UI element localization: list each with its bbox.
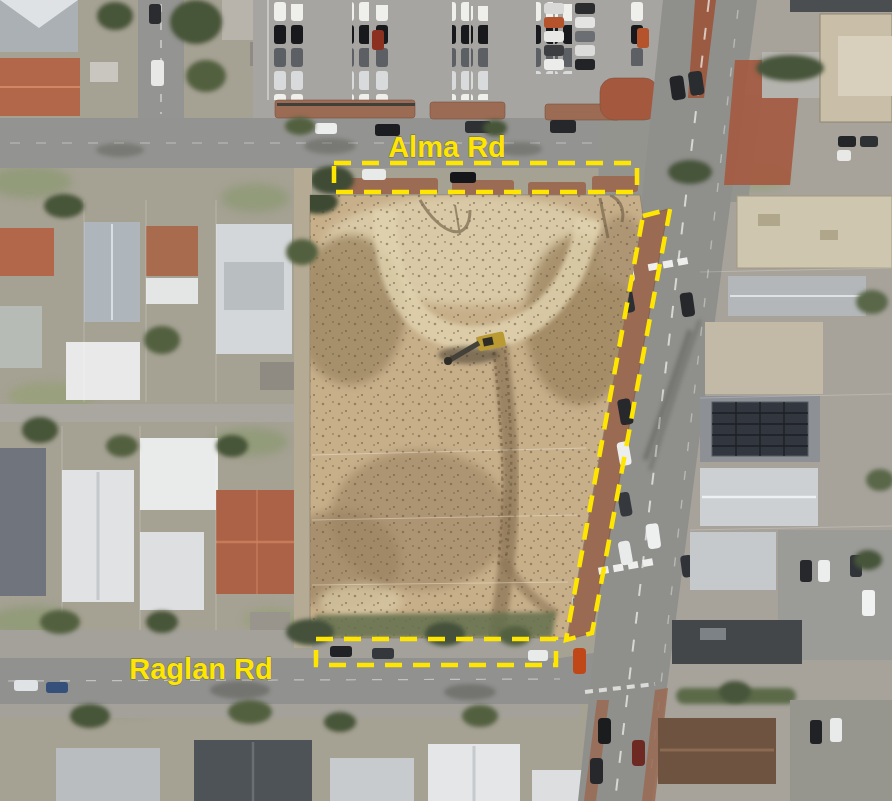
road-label-raglan: Raglan Rd	[129, 653, 272, 685]
aerial-map: Alma Rd Raglan Rd	[0, 0, 892, 801]
road-label-alma: Alma Rd	[388, 131, 506, 163]
orange-car	[573, 648, 586, 674]
solar-roof	[700, 396, 820, 462]
